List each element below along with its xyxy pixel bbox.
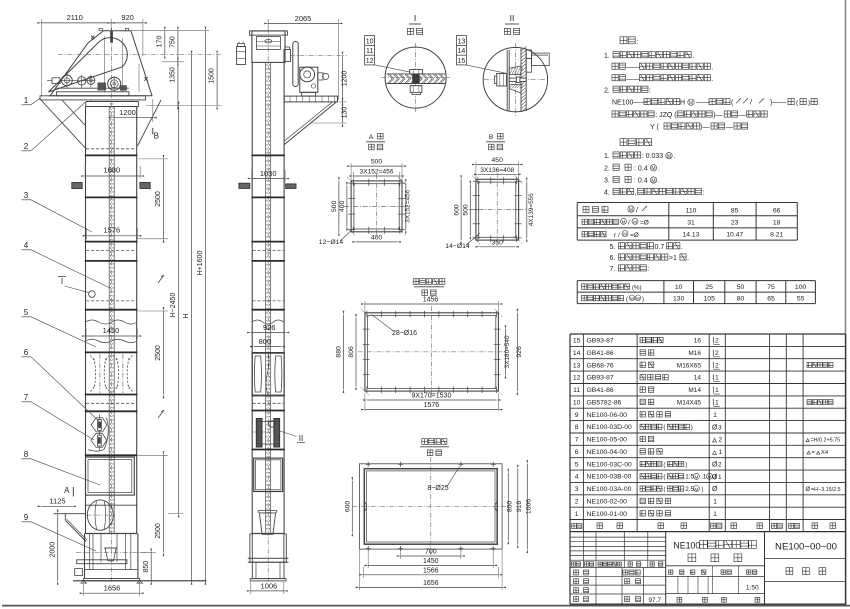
svg-text:9: 9	[575, 412, 579, 419]
svg-text:31: 31	[687, 219, 695, 226]
svg-text:GB93-87: GB93-87	[587, 338, 614, 345]
svg-text:2065: 2065	[295, 14, 312, 23]
svg-text:M14: M14	[688, 387, 701, 394]
svg-text:M14X45: M14X45	[677, 399, 702, 406]
svg-text:): )	[701, 486, 703, 493]
svg-text:1500: 1500	[209, 68, 216, 84]
svg-text:1: 1	[24, 96, 29, 105]
svg-text:1200: 1200	[119, 108, 136, 117]
svg-text:800: 800	[507, 501, 514, 513]
svg-text:=Ø: =Ø	[640, 220, 649, 227]
svg-text:66: 66	[773, 207, 781, 214]
svg-text:B: B	[154, 131, 159, 140]
svg-text:12: 12	[573, 375, 581, 382]
svg-text:1656: 1656	[423, 580, 439, 587]
svg-text:18: 18	[773, 219, 781, 226]
svg-text:GB93-87: GB93-87	[587, 375, 614, 382]
svg-text:1566: 1566	[423, 567, 439, 574]
svg-text:926: 926	[516, 346, 523, 358]
svg-text:M16X65: M16X65	[677, 362, 702, 369]
svg-text:2: 2	[575, 498, 579, 505]
svg-text:.: .	[681, 244, 683, 251]
svg-text:A: A	[64, 486, 70, 495]
svg-text:1: 1	[715, 399, 719, 406]
svg-text:NE100-03B-00: NE100-03B-00	[587, 474, 632, 481]
svg-text:=Ø: =Ø	[630, 232, 639, 239]
svg-text:M: M	[694, 487, 698, 492]
svg-text:23: 23	[731, 219, 739, 226]
svg-text::: :	[649, 87, 651, 94]
svg-text:.: .	[711, 76, 713, 83]
svg-text:3.: 3.	[604, 178, 610, 185]
svg-text:916: 916	[516, 501, 523, 513]
svg-text:)——: )——	[770, 100, 786, 107]
svg-text:1.: 1.	[604, 153, 610, 160]
svg-text:)—: )—	[700, 124, 709, 131]
svg-text:M: M	[707, 475, 711, 480]
svg-text:GB41-86: GB41-86	[587, 350, 614, 357]
svg-text:10: 10	[573, 399, 581, 406]
svg-text:8.21: 8.21	[770, 232, 783, 239]
svg-text:1: 1	[713, 511, 717, 518]
svg-text:3X152=456: 3X152=456	[404, 189, 411, 222]
svg-text:600: 600	[453, 204, 460, 216]
svg-text:700: 700	[425, 549, 437, 556]
svg-text:M: M	[622, 220, 626, 225]
svg-text:M: M	[633, 220, 637, 225]
svg-text:1576: 1576	[424, 402, 440, 409]
svg-text:1.5: 1.5	[685, 474, 694, 481]
svg-text:1350: 1350	[170, 67, 177, 83]
svg-text:GB68-76: GB68-76	[587, 362, 614, 369]
svg-text:X4: X4	[821, 450, 829, 456]
svg-text:1: 1	[719, 449, 723, 456]
svg-text:1: 1	[713, 498, 717, 505]
svg-text:NE100-02-00: NE100-02-00	[587, 498, 628, 505]
svg-text:2.: 2.	[604, 87, 610, 94]
svg-text:1450: 1450	[103, 326, 120, 335]
svg-text:H: H	[680, 100, 685, 107]
svg-text:M: M	[689, 101, 693, 107]
svg-text:2000: 2000	[49, 542, 56, 558]
svg-text:4: 4	[575, 474, 579, 481]
svg-text:50: 50	[737, 284, 745, 291]
svg-text::: :	[637, 39, 639, 46]
svg-text:2: 2	[24, 142, 29, 151]
svg-text:6: 6	[575, 449, 579, 456]
svg-text:850: 850	[143, 561, 150, 573]
svg-text:M: M	[694, 475, 698, 480]
svg-text:450: 450	[492, 157, 504, 164]
svg-text:2: 2	[718, 462, 722, 469]
svg-text:920: 920	[121, 13, 134, 22]
svg-text:15: 15	[458, 58, 466, 65]
svg-text:2110: 2110	[67, 13, 83, 22]
svg-text:14.13: 14.13	[682, 232, 699, 239]
svg-text:500: 500	[331, 200, 338, 212]
svg-text:NE100-01-00: NE100-01-00	[587, 511, 628, 518]
svg-text:.: .	[687, 255, 689, 262]
svg-text:1450: 1450	[423, 558, 439, 565]
svg-text:H+1600: H+1600	[197, 251, 204, 276]
svg-text:—: —	[739, 112, 746, 119]
svg-text:880: 880	[335, 346, 342, 358]
svg-text:1680: 1680	[103, 166, 120, 175]
svg-text:M16: M16	[688, 350, 701, 357]
svg-text:806: 806	[348, 346, 355, 358]
svg-text:14: 14	[458, 48, 466, 55]
svg-text:M: M	[623, 232, 627, 237]
svg-text:10.47: 10.47	[726, 232, 743, 239]
svg-text:): )	[808, 100, 810, 107]
svg-text:,: ,	[635, 190, 637, 197]
svg-text:13: 13	[458, 38, 466, 45]
svg-text:NE100-03A-00: NE100-03A-00	[587, 486, 632, 493]
svg-text:——: ——	[626, 76, 640, 83]
svg-text:926: 926	[263, 323, 276, 332]
svg-text:NE100-03C-00: NE100-03C-00	[587, 461, 633, 468]
svg-text:0.7: 0.7	[655, 244, 665, 251]
svg-text:1: 1	[575, 511, 579, 518]
svg-text:6.: 6.	[610, 255, 616, 262]
svg-text:2.5: 2.5	[685, 486, 694, 493]
svg-text:H: H	[183, 313, 190, 318]
svg-text:I: I	[61, 277, 63, 286]
svg-text:800: 800	[259, 337, 272, 346]
svg-text:(%): (%)	[632, 284, 642, 291]
svg-text:2: 2	[719, 437, 723, 444]
svg-text::: :	[647, 266, 649, 273]
svg-text:,1: ,1	[701, 474, 707, 481]
svg-text:3: 3	[24, 191, 29, 200]
svg-text:): )	[642, 296, 644, 303]
svg-text:400: 400	[371, 234, 383, 241]
svg-text:1030: 1030	[260, 169, 277, 178]
svg-text:10: 10	[366, 38, 374, 45]
svg-text:6: 6	[24, 348, 29, 357]
svg-text:97.7: 97.7	[648, 597, 661, 604]
svg-text:4X139=556: 4X139=556	[528, 193, 535, 226]
svg-text:: 0.4: : 0.4	[634, 165, 648, 172]
svg-text:——: ——	[696, 100, 710, 107]
svg-text:.: .	[674, 153, 676, 160]
svg-text:Y (: Y (	[650, 124, 659, 131]
svg-text:14−Ø14: 14−Ø14	[445, 243, 470, 250]
svg-text:NE100-04-00: NE100-04-00	[587, 449, 628, 456]
svg-text:1456: 1456	[423, 296, 439, 303]
svg-text:7: 7	[575, 437, 579, 444]
svg-text:5: 5	[575, 461, 579, 468]
svg-text:130: 130	[342, 107, 349, 119]
svg-text:3: 3	[718, 424, 722, 431]
svg-text:M: M	[651, 166, 655, 172]
svg-text::: :	[651, 141, 653, 148]
svg-text:1656: 1656	[104, 584, 121, 593]
svg-text:=H/0.2+5.75: =H/0.2+5.75	[811, 438, 841, 444]
svg-text:14: 14	[573, 350, 581, 357]
svg-text:1: 1	[715, 387, 719, 394]
svg-text:25: 25	[705, 284, 713, 291]
svg-text:7.: 7.	[610, 266, 616, 273]
svg-text:1: 1	[715, 375, 719, 382]
svg-text:28−Ø16: 28−Ø16	[392, 330, 417, 337]
svg-text:NE100-06-00: NE100-06-00	[587, 412, 628, 419]
svg-text:2: 2	[715, 350, 719, 357]
svg-text:GB41-86: GB41-86	[587, 387, 614, 394]
svg-text:B: B	[489, 134, 494, 141]
svg-text:: 0.4: : 0.4	[634, 178, 648, 185]
svg-text:NE100−00−00: NE100−00−00	[775, 541, 837, 552]
svg-text:4: 4	[24, 241, 29, 250]
svg-text:8: 8	[575, 424, 579, 431]
svg-text:9X170=1530: 9X170=1530	[411, 392, 451, 399]
svg-text:110: 110	[686, 207, 697, 214]
svg-text::: :	[702, 190, 704, 197]
svg-text:2500: 2500	[155, 191, 162, 207]
svg-text:2500: 2500	[155, 523, 162, 539]
svg-text:.: .	[692, 53, 694, 60]
svg-text:.: .	[819, 100, 821, 107]
svg-text:1006: 1006	[526, 499, 533, 514]
svg-text:1576: 1576	[103, 226, 120, 235]
svg-text:1006: 1006	[261, 581, 278, 590]
svg-text:: JZQ (: : JZQ (	[655, 112, 677, 119]
svg-text:M: M	[629, 207, 633, 213]
svg-text:>1: >1	[669, 255, 677, 262]
svg-text:.: .	[711, 64, 713, 71]
svg-text:=H−3.15/2.5: =H−3.15/2.5	[811, 487, 841, 493]
svg-text:11: 11	[573, 387, 580, 394]
svg-text:NE100——: NE100——	[612, 100, 647, 107]
svg-text:II: II	[299, 434, 303, 443]
svg-text:——: ——	[626, 64, 640, 71]
svg-text:11: 11	[366, 48, 373, 55]
svg-text:3: 3	[575, 486, 579, 493]
svg-text:12−Ø14: 12−Ø14	[319, 239, 344, 246]
svg-text:H−2450: H−2450	[170, 293, 177, 318]
svg-text:Ø: Ø	[712, 486, 718, 493]
svg-text:: 0.033: : 0.033	[642, 153, 664, 160]
svg-text:1: 1	[718, 474, 722, 481]
svg-text:1125: 1125	[49, 497, 65, 506]
svg-text:1: 1	[713, 412, 717, 419]
svg-text:): )	[685, 461, 687, 468]
svg-text:.: .	[658, 178, 660, 185]
svg-text:2500: 2500	[155, 345, 162, 361]
svg-text:II: II	[510, 13, 515, 23]
svg-text:2: 2	[715, 362, 719, 369]
svg-text:M: M	[630, 296, 634, 301]
svg-text:750: 750	[170, 36, 177, 48]
svg-text:65: 65	[767, 296, 775, 303]
svg-text:NE100-03D-00: NE100-03D-00	[587, 424, 633, 431]
svg-text:)—: )—	[713, 112, 722, 119]
svg-text:2.: 2.	[604, 165, 610, 172]
svg-text:9: 9	[24, 513, 29, 522]
svg-text:/: /	[750, 100, 752, 107]
svg-text:170: 170	[156, 36, 163, 48]
svg-text:.: .	[658, 165, 660, 172]
svg-text:M: M	[636, 296, 640, 301]
svg-text:5: 5	[24, 308, 29, 317]
svg-text:/: /	[636, 208, 638, 215]
svg-text:8: 8	[24, 450, 29, 459]
svg-text:14: 14	[694, 375, 702, 382]
svg-text:M: M	[667, 154, 671, 160]
svg-text:400: 400	[339, 200, 346, 212]
svg-text:75: 75	[767, 284, 775, 291]
svg-text:M: M	[651, 178, 655, 184]
svg-text:55: 55	[797, 296, 805, 303]
svg-text:80: 80	[737, 296, 745, 303]
svg-text:/: /	[628, 220, 630, 227]
svg-text:16: 16	[694, 338, 702, 345]
svg-text:500: 500	[371, 159, 383, 166]
svg-text:3X180=540: 3X180=540	[504, 335, 511, 368]
svg-text:5.: 5.	[610, 244, 616, 251]
svg-text:500: 500	[463, 204, 470, 216]
svg-text:85: 85	[731, 207, 739, 214]
svg-text:15: 15	[573, 338, 581, 345]
svg-text:13: 13	[573, 362, 581, 369]
svg-text:/: /	[618, 232, 620, 239]
svg-text:NE100-05-00: NE100-05-00	[587, 437, 628, 444]
svg-text:NE100: NE100	[673, 540, 700, 550]
svg-text:1200: 1200	[342, 71, 349, 87]
svg-text:3X136=408: 3X136=408	[480, 167, 514, 174]
svg-text:8−Ø25: 8−Ø25	[427, 485, 448, 492]
svg-text:100: 100	[795, 284, 807, 291]
svg-text:A: A	[369, 134, 374, 141]
svg-text:350: 350	[492, 239, 504, 246]
svg-text:7: 7	[24, 393, 29, 402]
svg-text:Ø: Ø	[806, 487, 811, 493]
svg-text:GB5782-86: GB5782-86	[587, 399, 622, 406]
svg-text:600: 600	[344, 501, 351, 513]
svg-text:130: 130	[673, 296, 685, 303]
svg-text:2: 2	[715, 338, 719, 345]
svg-text:10: 10	[675, 284, 683, 291]
svg-text:): )	[691, 424, 693, 431]
svg-text:4.: 4.	[604, 190, 610, 197]
svg-text:1.: 1.	[604, 53, 610, 60]
svg-text:—: —	[726, 124, 733, 131]
svg-text:1:50: 1:50	[746, 584, 759, 591]
svg-text:I: I	[414, 13, 416, 23]
svg-text:105: 105	[704, 296, 716, 303]
svg-text:12: 12	[366, 58, 374, 65]
